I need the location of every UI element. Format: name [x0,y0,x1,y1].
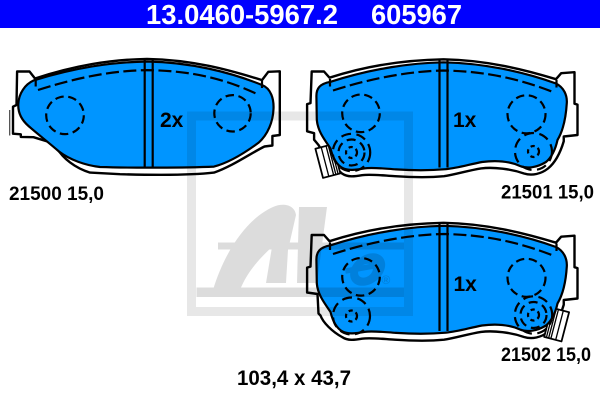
svg-text:®: ® [382,273,391,287]
svg-text:1x: 1x [453,109,477,132]
svg-text:2x: 2x [160,109,184,132]
svg-text:605967: 605967 [371,0,462,30]
svg-text:1x: 1x [454,273,478,296]
svg-text:103,4 x 43,7: 103,4 x 43,7 [237,367,351,390]
svg-text:21502 15,0: 21502 15,0 [501,344,591,366]
svg-text:13.0460-5967.2: 13.0460-5967.2 [146,0,338,30]
svg-text:21500 15,0: 21500 15,0 [9,183,104,205]
svg-text:21501 15,0: 21501 15,0 [501,182,594,204]
